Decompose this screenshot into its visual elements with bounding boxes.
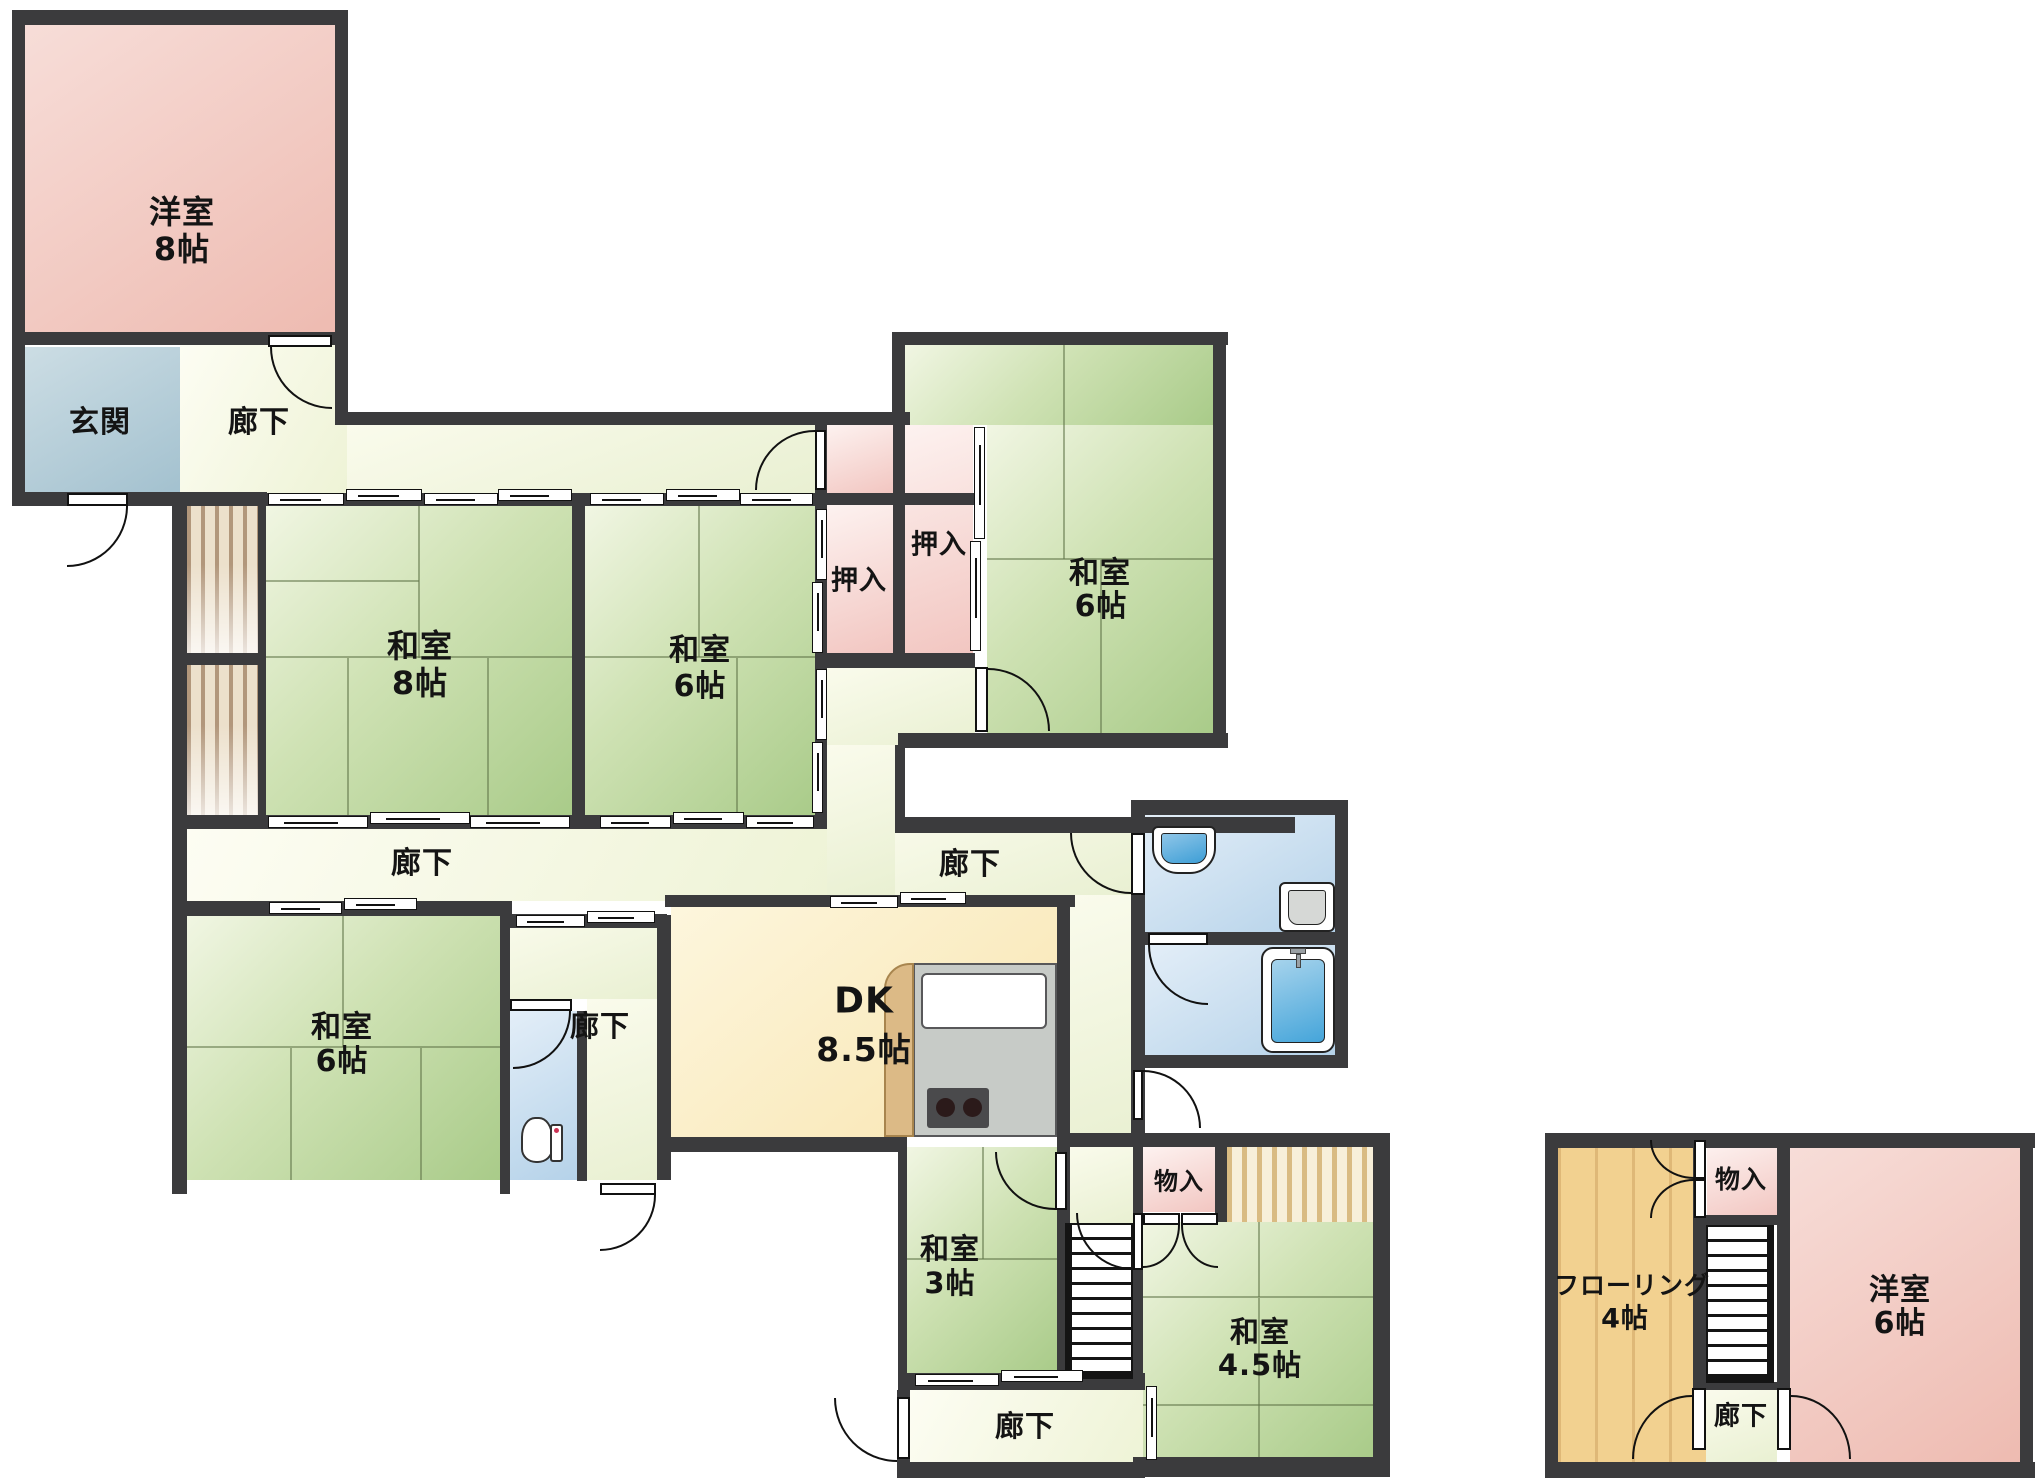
sliding-door-icon (516, 915, 585, 927)
label-oshiire-left: 押入 (831, 559, 887, 598)
wall-segment (1131, 800, 1348, 815)
wall-segment (1545, 1462, 2035, 1478)
stove-burner-right (963, 1098, 982, 1117)
sliding-door-icon (600, 816, 671, 828)
label-monoire-mid: 物入 (1154, 1162, 1204, 1197)
wall-segment (2020, 1133, 2033, 1478)
toilet-button-icon (554, 1128, 559, 1133)
bathtub-water (1271, 959, 1325, 1043)
wall-segment (500, 916, 510, 1194)
closet-small-top (825, 425, 893, 493)
sliding-door-icon (970, 541, 981, 651)
wall-segment (892, 332, 905, 425)
tatami-line (290, 1048, 292, 1180)
stairs-annex (1706, 1225, 1774, 1383)
wall-segment (898, 733, 1228, 748)
washing-machine-drum (1288, 890, 1326, 925)
label-dk-size: 8.5帖 (816, 1023, 911, 1071)
corridor-mid (510, 916, 657, 999)
sink-basin (1161, 833, 1207, 864)
wall-segment (1693, 1217, 1706, 1390)
floor-plan: 洋室 8帖 玄関 廊下 和室 8帖 和室 6帖 押入 押入 和室 6帖 廊下 廊… (0, 0, 2040, 1484)
door-leaf-icon (268, 335, 332, 347)
label-washitsu6tr-size: 6帖 (1075, 581, 1128, 625)
corridor-strip-east (1070, 895, 1131, 1147)
wall-segment (898, 1137, 907, 1390)
tatami-line (1143, 1296, 1373, 1298)
wall-segment (1133, 1457, 1390, 1477)
toilet-bowl-icon (521, 1117, 553, 1163)
door-arc-icon (834, 1398, 897, 1462)
sliding-door-icon (370, 812, 470, 824)
wall-segment (892, 332, 1228, 345)
label-rouka-top: 廊下 (228, 397, 290, 441)
sliding-door-icon (1146, 1386, 1157, 1460)
wall-segment (1373, 1133, 1390, 1477)
label-yoshitsu8-size: 8帖 (154, 224, 210, 270)
wall-segment (1065, 1133, 1390, 1147)
label-rouka-bottom: 廊下 (995, 1403, 1055, 1445)
sliding-door-icon (816, 669, 827, 740)
sliding-door-icon (673, 812, 744, 824)
door-leaf-icon (1148, 933, 1208, 945)
tatami-line (420, 1048, 422, 1180)
corridor-top-strip (347, 425, 815, 493)
label-dk-name: DK (834, 981, 894, 1022)
label-genkan: 玄関 (69, 397, 131, 441)
wall-segment (172, 505, 187, 1194)
wall-segment (12, 10, 348, 25)
wall-segment (815, 653, 975, 668)
door-leaf-icon (975, 667, 988, 732)
door-leaf-icon (510, 999, 572, 1011)
tatami-line (347, 658, 349, 816)
sliding-door-icon (830, 896, 898, 908)
sliding-door-icon (974, 427, 985, 539)
wall-segment (1545, 1133, 1558, 1478)
door-leaf-icon (67, 493, 128, 506)
sliding-door-icon (470, 816, 570, 828)
stairs-landing (1065, 1147, 1133, 1223)
sliding-door-icon (666, 489, 740, 501)
sliding-door-icon (1001, 1370, 1083, 1382)
label-washitsu8-size: 8帖 (392, 658, 448, 704)
sliding-door-icon (344, 898, 417, 910)
door-leaf-icon (1777, 1388, 1791, 1450)
door-leaf-icon (1694, 1140, 1706, 1179)
closet-stripe-2 (187, 665, 258, 815)
closet-itanoma (1227, 1147, 1373, 1222)
sliding-door-icon (590, 493, 664, 505)
door-leaf-icon (1143, 1213, 1180, 1225)
door-leaf-icon (600, 1183, 656, 1195)
wall-segment (1215, 1147, 1227, 1222)
sliding-door-icon (268, 816, 368, 828)
wall-segment (185, 653, 259, 665)
label-yoshitsu6-size: 6帖 (1874, 1298, 1927, 1342)
label-rouka-annex: 廊下 (1714, 1396, 1768, 1433)
sliding-door-icon (746, 816, 814, 828)
wall-segment (1545, 1133, 2035, 1148)
label-flooring-size: 4帖 (1601, 1297, 1649, 1336)
wall-segment (572, 495, 585, 828)
tatami-line (262, 580, 419, 582)
wall-segment (12, 10, 25, 505)
door-leaf-icon (1131, 833, 1145, 895)
door-leaf-icon (897, 1397, 910, 1459)
sliding-door-icon (915, 1374, 999, 1386)
sliding-door-icon (424, 493, 498, 505)
door-leaf-icon (1133, 1070, 1143, 1120)
corridor-vert-2 (827, 745, 895, 895)
closet-stripe-1 (187, 505, 258, 653)
label-washitsu45-size: 4.5帖 (1218, 1342, 1302, 1384)
sliding-door-icon (268, 493, 344, 505)
door-leaf-icon (1133, 1213, 1143, 1270)
label-rouka-left: 廊下 (391, 838, 453, 882)
wall-segment (258, 505, 266, 816)
wall-segment (893, 425, 905, 653)
bath-faucet-stem (1296, 954, 1301, 968)
door-leaf-icon (1181, 1213, 1218, 1225)
door-leaf-icon (1055, 1152, 1067, 1210)
wall-segment (172, 901, 512, 916)
label-oshiire-right: 押入 (911, 523, 967, 562)
sliding-door-icon (587, 911, 655, 923)
wall-segment (1693, 1215, 1783, 1225)
sliding-door-icon (816, 509, 827, 580)
sliding-door-icon (346, 489, 422, 501)
sliding-door-icon (498, 489, 572, 501)
wall-segment (1777, 1133, 1790, 1393)
stove-burner-left (936, 1098, 955, 1117)
wall-segment (895, 817, 1295, 833)
kitchen-sink (921, 973, 1047, 1029)
door-arc-icon (1143, 1070, 1201, 1128)
wall-segment (1335, 800, 1348, 1068)
label-monoire-annex: 物入 (1715, 1160, 1767, 1196)
door-arc-icon (67, 506, 128, 567)
door-leaf-icon (1694, 1179, 1706, 1218)
wall-segment (335, 10, 348, 425)
tatami-line (982, 1147, 984, 1259)
wall-segment (335, 412, 910, 425)
label-washitsu3-size: 3帖 (924, 1260, 975, 1302)
room-yoshitsu-8jo (25, 25, 335, 332)
tatami-line (487, 658, 489, 816)
tatami-line (1258, 1222, 1260, 1297)
label-rouka-right: 廊下 (939, 839, 1001, 883)
corridor-left (185, 829, 827, 901)
wall-segment (1706, 1382, 1777, 1390)
label-rouka-mid: 廊下 (570, 1003, 630, 1045)
wall-segment (897, 1462, 1145, 1478)
door-leaf-icon (815, 430, 826, 490)
sliding-door-icon (269, 902, 342, 914)
sliding-door-icon (812, 742, 823, 813)
wall-segment (12, 492, 267, 506)
sliding-door-icon (740, 493, 813, 505)
wall-segment (657, 1137, 907, 1152)
sliding-door-icon (900, 892, 966, 904)
tatami-line (736, 658, 738, 816)
door-arc-icon (600, 1195, 656, 1251)
label-washitsu6bl-size: 6帖 (316, 1036, 369, 1080)
sliding-door-icon (812, 582, 823, 653)
label-washitsu6mid-size: 6帖 (674, 661, 727, 705)
wall-segment (1213, 332, 1226, 748)
room-washitsu-6jo-tr-upper (905, 345, 1213, 425)
tatami-line (1063, 345, 1065, 559)
wall-segment (1131, 1055, 1348, 1068)
door-leaf-icon (1692, 1388, 1706, 1450)
